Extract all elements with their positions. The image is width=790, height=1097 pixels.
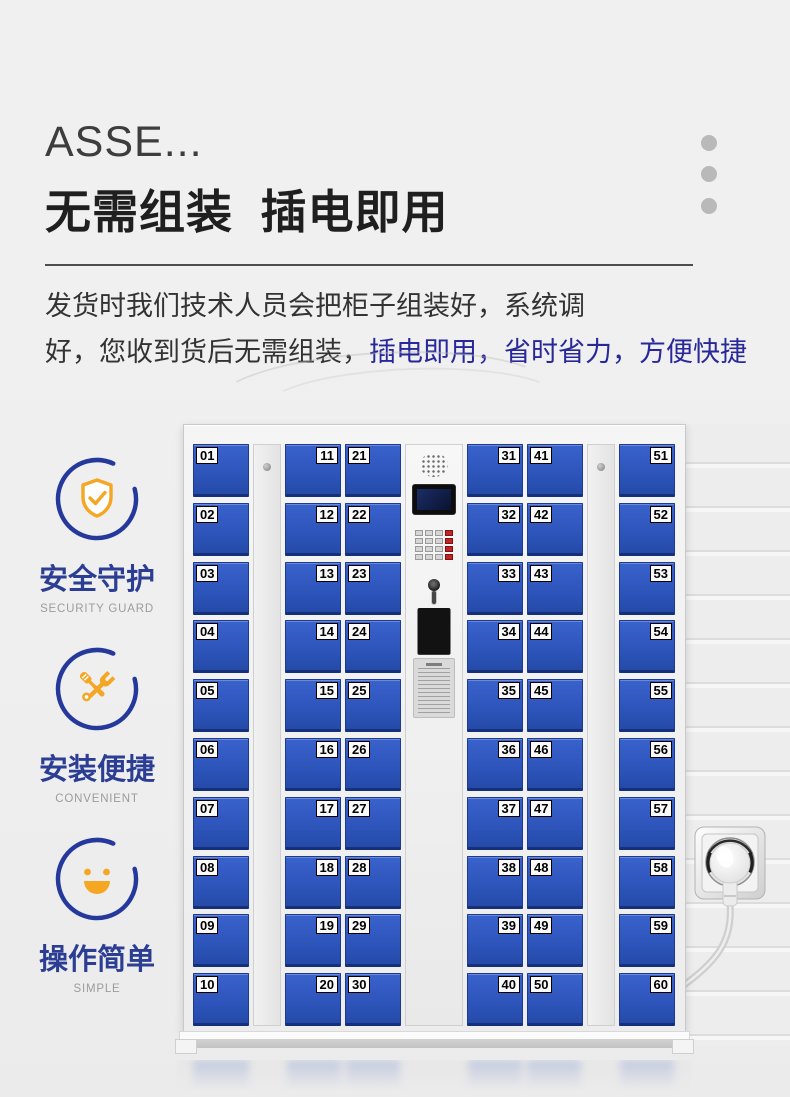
- door-number: 38: [498, 859, 520, 876]
- decor-dot: [701, 135, 717, 151]
- door-number: 23: [348, 565, 370, 582]
- door-number: 06: [196, 741, 218, 758]
- locker-door-14: 14: [285, 620, 341, 673]
- cabinet-foot: [175, 1039, 197, 1054]
- door-number: 05: [196, 682, 218, 699]
- locker-door-39: 39: [467, 914, 523, 967]
- door-number: 54: [650, 623, 672, 640]
- key-icon: [432, 591, 436, 604]
- locker-door-18: 18: [285, 856, 341, 909]
- door-number: 28: [348, 859, 370, 876]
- feature-subtitle: SIMPLE: [28, 983, 166, 995]
- decor-dot: [701, 198, 717, 214]
- door-number: 08: [196, 859, 218, 876]
- locker-door-02: 02: [193, 503, 249, 556]
- locker-door-10: 10: [193, 973, 249, 1026]
- door-number: 39: [498, 917, 520, 934]
- door-number: 43: [530, 565, 552, 582]
- locker-door-15: 15: [285, 679, 341, 732]
- door-number: 50: [530, 976, 552, 993]
- feature-convenient: 安装便捷 CONVENIENT: [28, 646, 166, 805]
- locker-door-11: 11: [285, 444, 341, 497]
- locker-door-34: 34: [467, 620, 523, 673]
- eyebrow-text: ASSE...: [45, 118, 203, 167]
- locker-door-05: 05: [193, 679, 249, 732]
- key-lock-icon: [428, 579, 440, 591]
- door-number: 29: [348, 917, 370, 934]
- shield-check-icon: [28, 456, 166, 542]
- door-number: 59: [650, 917, 672, 934]
- feature-security: 安全守护 SECURITY GUARD: [28, 456, 166, 615]
- promo-page: ASSE... 无需组装 插电即用 发货时我们技术人员会把柜子组装好，系统调 好…: [0, 0, 790, 1097]
- locker-door-52: 52: [619, 503, 675, 556]
- door-number: 04: [196, 623, 218, 640]
- locker-door-37: 37: [467, 797, 523, 850]
- screw-icon: [597, 463, 605, 471]
- cabinet-foot: [672, 1039, 694, 1054]
- locker-door-23: 23: [345, 562, 401, 615]
- locker-door-59: 59: [619, 914, 675, 967]
- door-number: 46: [530, 741, 552, 758]
- door-number: 48: [530, 859, 552, 876]
- door-number: 51: [650, 447, 672, 464]
- locker-door-54: 54: [619, 620, 675, 673]
- locker-door-25: 25: [345, 679, 401, 732]
- locker-door-48: 48: [527, 856, 583, 909]
- locker-grid: 0102030405060708091011121314151617181920…: [193, 444, 676, 1026]
- locker-door-41: 41: [527, 444, 583, 497]
- feature-simple: 操作简单 SIMPLE: [28, 836, 166, 995]
- locker-door-20: 20: [285, 973, 341, 1026]
- feature-title: 安全守护: [28, 556, 166, 598]
- locker-door-32: 32: [467, 503, 523, 556]
- door-number: 18: [316, 859, 338, 876]
- door-number: 24: [348, 623, 370, 640]
- description-line-1: 发货时我们技术人员会把柜子组装好，系统调: [45, 283, 765, 329]
- door-number: 55: [650, 682, 672, 699]
- door-number: 13: [316, 565, 338, 582]
- locker-door-43: 43: [527, 562, 583, 615]
- feature-subtitle: SECURITY GUARD: [28, 603, 166, 615]
- door-number: 09: [196, 917, 218, 934]
- locker-door-12: 12: [285, 503, 341, 556]
- page-title: 无需组装 插电即用: [45, 176, 449, 242]
- locker-door-46: 46: [527, 738, 583, 791]
- door-number: 22: [348, 506, 370, 523]
- door-number: 34: [498, 623, 520, 640]
- door-number: 60: [650, 976, 672, 993]
- door-number: 42: [530, 506, 552, 523]
- hinge-strip: [587, 444, 615, 1026]
- locker-door-01: 01: [193, 444, 249, 497]
- locker-door-22: 22: [345, 503, 401, 556]
- locker-door-30: 30: [345, 973, 401, 1026]
- locker-door-21: 21: [345, 444, 401, 497]
- door-number: 19: [316, 917, 338, 934]
- locker-door-49: 49: [527, 914, 583, 967]
- tools-icon: [28, 646, 166, 732]
- display-screen: [412, 484, 456, 515]
- door-number: 03: [196, 565, 218, 582]
- door-number: 07: [196, 800, 218, 817]
- control-keypad: [415, 530, 453, 560]
- locker-door-16: 16: [285, 738, 341, 791]
- door-number: 44: [530, 623, 552, 640]
- hinge-strip: [253, 444, 281, 1026]
- locker-door-36: 36: [467, 738, 523, 791]
- door-number: 10: [196, 976, 218, 993]
- door-number: 58: [650, 859, 672, 876]
- door-number: 20: [316, 976, 338, 993]
- door-number: 25: [348, 682, 370, 699]
- locker-door-58: 58: [619, 856, 675, 909]
- locker-door-27: 27: [345, 797, 401, 850]
- locker-door-13: 13: [285, 562, 341, 615]
- smiley-icon: [28, 836, 166, 922]
- locker-door-35: 35: [467, 679, 523, 732]
- feature-subtitle: CONVENIENT: [28, 793, 166, 805]
- door-number: 30: [348, 976, 370, 993]
- door-number: 36: [498, 741, 520, 758]
- locker-door-07: 07: [193, 797, 249, 850]
- floor-reflection: [176, 1060, 692, 1094]
- door-number: 45: [530, 682, 552, 699]
- speaker-grille-icon: [420, 453, 448, 477]
- door-number: 27: [348, 800, 370, 817]
- locker-door-44: 44: [527, 620, 583, 673]
- locker-door-47: 47: [527, 797, 583, 850]
- door-number: 52: [650, 506, 672, 523]
- locker-door-56: 56: [619, 738, 675, 791]
- locker-door-50: 50: [527, 973, 583, 1026]
- door-number: 32: [498, 506, 520, 523]
- locker-door-31: 31: [467, 444, 523, 497]
- screw-icon: [263, 463, 271, 471]
- door-number: 47: [530, 800, 552, 817]
- door-number: 12: [316, 506, 338, 523]
- decor-dot: [701, 166, 717, 182]
- door-number: 01: [196, 447, 218, 464]
- door-number: 11: [316, 447, 338, 464]
- power-socket: [686, 820, 790, 1020]
- locker-door-40: 40: [467, 973, 523, 1026]
- door-number: 21: [348, 447, 370, 464]
- door-number: 02: [196, 506, 218, 523]
- locker-door-28: 28: [345, 856, 401, 909]
- door-number: 37: [498, 800, 520, 817]
- locker-door-57: 57: [619, 797, 675, 850]
- locker-door-06: 06: [193, 738, 249, 791]
- locker-door-55: 55: [619, 679, 675, 732]
- door-number: 26: [348, 741, 370, 758]
- door-number: 53: [650, 565, 672, 582]
- door-number: 41: [530, 447, 552, 464]
- door-number: 56: [650, 741, 672, 758]
- locker-door-53: 53: [619, 562, 675, 615]
- locker-door-29: 29: [345, 914, 401, 967]
- locker-door-17: 17: [285, 797, 341, 850]
- locker-door-33: 33: [467, 562, 523, 615]
- divider-line: [45, 264, 693, 266]
- locker-door-45: 45: [527, 679, 583, 732]
- door-number: 57: [650, 800, 672, 817]
- door-number: 31: [498, 447, 520, 464]
- locker-door-38: 38: [467, 856, 523, 909]
- locker-door-60: 60: [619, 973, 675, 1026]
- instruction-sticker: [413, 658, 455, 718]
- door-number: 15: [316, 682, 338, 699]
- door-number: 49: [530, 917, 552, 934]
- door-number: 16: [316, 741, 338, 758]
- locker-door-08: 08: [193, 856, 249, 909]
- locker-door-19: 19: [285, 914, 341, 967]
- card-slot-window: [418, 608, 451, 655]
- door-number: 14: [316, 623, 338, 640]
- locker-door-04: 04: [193, 620, 249, 673]
- feature-title: 安装便捷: [28, 746, 166, 788]
- cabinet-base: [175, 1031, 694, 1057]
- control-panel: [405, 444, 463, 1026]
- locker-door-03: 03: [193, 562, 249, 615]
- feature-title: 操作简单: [28, 936, 166, 978]
- locker-door-26: 26: [345, 738, 401, 791]
- locker-door-42: 42: [527, 503, 583, 556]
- door-number: 17: [316, 800, 338, 817]
- door-number: 33: [498, 565, 520, 582]
- door-number: 35: [498, 682, 520, 699]
- locker-cabinet: 0102030405060708091011121314151617181920…: [183, 424, 686, 1033]
- locker-door-51: 51: [619, 444, 675, 497]
- locker-door-09: 09: [193, 914, 249, 967]
- locker-door-24: 24: [345, 620, 401, 673]
- door-number: 40: [498, 976, 520, 993]
